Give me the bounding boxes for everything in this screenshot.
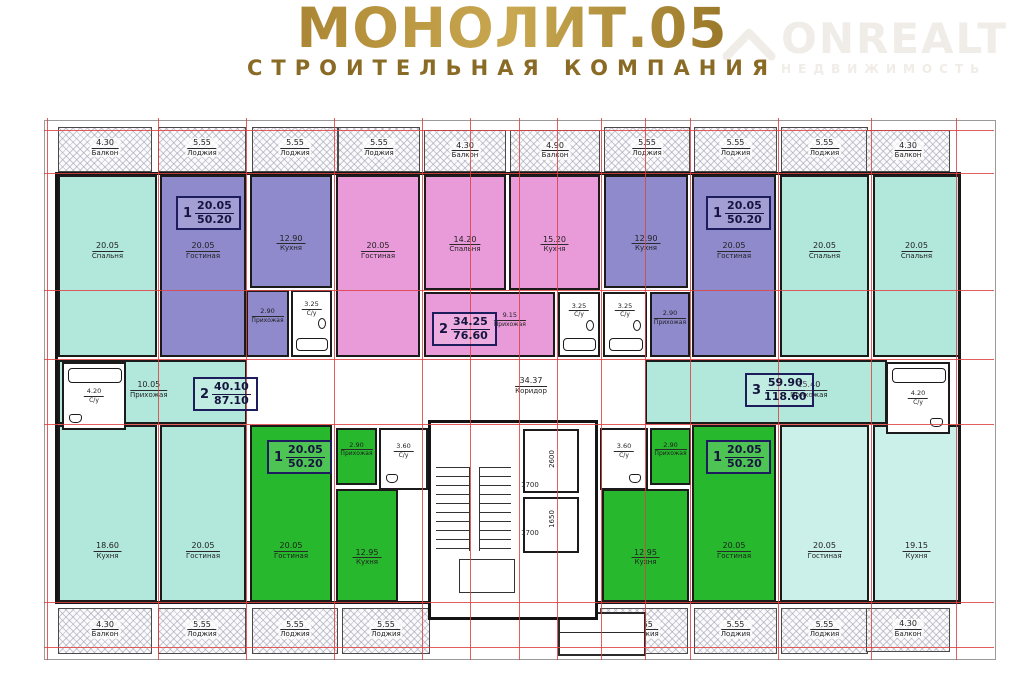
bathtub-icon [563, 338, 596, 351]
balcony-area: 5.55 [721, 620, 750, 631]
apartment-living-area: 20.05 [195, 200, 234, 214]
room-area: 20.05 [361, 241, 395, 252]
balcony-label: 5.55Лоджия [362, 138, 395, 157]
apartment-total-area: 50.20 [288, 458, 323, 471]
room: 2.90Прихожая [246, 290, 289, 357]
room-label: 4.20С/у [84, 388, 104, 404]
room-name: Прихожая [130, 391, 168, 399]
balcony-label: 4.30Балкон [893, 141, 924, 160]
room-name: С/у [908, 399, 928, 406]
room-name: Прихожая [654, 450, 686, 457]
balcony-area: 4.30 [92, 620, 119, 631]
balcony-name: Лоджия [364, 149, 393, 157]
balcony-name: Балкон [452, 151, 479, 159]
balcony-name: Лоджия [371, 630, 400, 638]
balcony-area: 5.55 [187, 620, 216, 631]
room-area: 14.20 [449, 235, 480, 246]
dimension-label: 1700 [521, 481, 539, 489]
axis-line [645, 118, 646, 660]
apartment-total-area: 50.20 [727, 214, 762, 227]
axis-line [871, 118, 872, 660]
balcony-area: 5.55 [810, 620, 839, 631]
room-area: 20.05 [717, 241, 751, 252]
room-name: Гостиная [186, 252, 220, 260]
room-area: 12.90 [277, 234, 306, 245]
axis-line [44, 424, 994, 425]
room: 12.90Кухня [604, 175, 688, 288]
room-name: С/у [614, 452, 634, 459]
room-label: 20.05Гостиная [717, 541, 751, 560]
apartment-areas: 20.0550.20 [286, 444, 325, 470]
axis-line [519, 118, 520, 660]
balcony-area: 4.30 [895, 141, 922, 152]
balcony-name: Лоджия [810, 149, 839, 157]
toilet-icon [629, 474, 641, 483]
axis-line [44, 647, 994, 648]
room-area: 18.60 [93, 541, 122, 552]
apartment-total-area: 50.20 [197, 214, 232, 227]
room-label: 3.25С/у [301, 301, 321, 317]
room-area: 2.90 [251, 308, 283, 317]
balcony-label: 5.55Лоджия [808, 138, 841, 157]
room-name: С/у [393, 452, 413, 459]
room-area: 20.05 [809, 241, 840, 252]
apartment-number: 1 [713, 450, 722, 465]
apartment-living-area: 40.10 [212, 381, 251, 395]
room-area: 15.20 [540, 235, 569, 246]
apartment-number: 1 [274, 450, 283, 465]
bathtub-icon [296, 338, 328, 351]
room-label: 20.05Гостиная [717, 241, 751, 260]
balcony-label: 4.30Балкон [450, 141, 481, 160]
room-label: 12.95Кухня [353, 548, 382, 567]
room-area: 20.05 [186, 241, 220, 252]
room-label: 20.05Гостиная [274, 541, 308, 560]
loggia: 5.55Лоджия [604, 127, 690, 172]
balcony-area: 4.30 [452, 141, 479, 152]
balcony: 4.30Балкон [866, 130, 950, 172]
room: 20.05Гостиная [336, 175, 420, 357]
toilet-icon [386, 474, 398, 483]
entrance-step-line [560, 632, 644, 633]
room-area: 2.90 [654, 442, 686, 451]
room-area: 2.90 [654, 310, 686, 319]
apartment-areas: 20.0550.20 [725, 200, 764, 226]
apartment-areas: 20.0550.20 [195, 200, 234, 226]
stair-landing [459, 559, 515, 593]
room-name: Прихожая [654, 319, 686, 326]
apartment-area-badge: 120.0550.20 [706, 196, 771, 230]
axis-line [601, 118, 602, 660]
room-name: Кухня [540, 245, 569, 253]
room-label: 20.05Спальня [901, 241, 932, 260]
balcony-label: 5.55Лоджия [278, 620, 311, 639]
balcony-label: 5.55Лоджия [185, 138, 218, 157]
room: 2.90Прихожая [650, 292, 690, 357]
apartment-number: 2 [200, 387, 209, 402]
axis-line [44, 130, 994, 131]
room-area: 4.20 [908, 390, 928, 399]
apartment-area-badge: 120.0550.20 [706, 440, 771, 474]
room: 15.20Кухня [509, 175, 600, 290]
room-name: Гостиная [274, 552, 308, 560]
room-name: С/у [615, 311, 635, 318]
room-name: Кухня [353, 558, 382, 566]
balcony-area: 4.90 [542, 141, 569, 152]
balcony-area: 5.55 [280, 620, 309, 631]
room: 2.90Прихожая [336, 428, 377, 485]
room-label: 3.60С/у [614, 443, 634, 459]
room-name: Спальня [449, 245, 480, 253]
balcony-label: 5.55Лоджия [369, 620, 402, 639]
apartment-area-badge: 120.0550.20 [267, 440, 332, 474]
apartment-number: 1 [183, 206, 192, 221]
room: 20.05Спальня [58, 175, 157, 357]
room: 18.60Кухня [58, 425, 157, 602]
balcony-area: 5.55 [810, 138, 839, 149]
room-label: 20.05Гостиная [186, 241, 220, 260]
floor-plan: 4.30Балкон 5.55Лоджия 5.55Лоджия 5.55Лод… [0, 0, 1024, 673]
room-label: 3.25С/у [569, 303, 589, 319]
dimension-label: 2600 [548, 450, 556, 468]
room-label: 20.05Спальня [809, 241, 840, 260]
staircase [436, 467, 511, 551]
balcony-label: 5.55Лоджия [630, 138, 663, 157]
balcony-area: 5.55 [187, 138, 216, 149]
bathroom: 3.25С/у [291, 290, 332, 357]
apartment-area-badge: 240.1087.10 [193, 377, 258, 411]
balcony-area: 5.55 [364, 138, 393, 149]
room-label: 20.05Гостиная [807, 541, 841, 560]
room-name: Спальня [92, 252, 123, 260]
room-area: 20.05 [92, 241, 123, 252]
axis-line [44, 173, 994, 174]
apartment-total-area: 87.10 [214, 395, 249, 408]
balcony-name: Лоджия [187, 630, 216, 638]
room-name: Прихожая [494, 321, 526, 328]
axis-line [47, 118, 48, 660]
balcony-label: 5.55Лоджия [719, 138, 752, 157]
room-name: Гостиная [807, 552, 841, 560]
axis-line [422, 118, 423, 660]
room-area: 2.90 [340, 442, 372, 451]
bathroom: 4.20С/у [62, 362, 126, 430]
toilet-icon [69, 414, 82, 423]
room-area: 20.05 [807, 541, 841, 552]
room-area: 10.05 [130, 380, 168, 391]
balcony-name: Лоджия [280, 630, 309, 638]
room-area: 20.05 [274, 541, 308, 552]
balcony-label: 5.55Лоджия [719, 620, 752, 639]
room-label: 15.20Кухня [540, 235, 569, 254]
apartment-living-area: 20.05 [725, 444, 764, 458]
room-label: 2.90Прихожая [654, 442, 686, 458]
balcony-name: Лоджия [721, 630, 750, 638]
room-label: 3.60С/у [393, 443, 413, 459]
room-label: 4.20С/у [908, 390, 928, 406]
apartment-areas: 40.1087.10 [212, 381, 251, 407]
loggia: 5.55Лоджия [781, 127, 868, 172]
sink-icon [633, 320, 641, 331]
room-area: 19.15 [902, 541, 931, 552]
loggia: 5.55Лоджия [158, 127, 246, 172]
room-area: 3.60 [393, 443, 413, 452]
balcony: 4.30Балкон [58, 127, 152, 172]
room: 20.05Гостиная [780, 425, 869, 602]
balcony-label: 4.90Балкон [540, 141, 571, 160]
room-area: 12.90 [632, 234, 661, 245]
room-name: Кухня [277, 244, 306, 252]
room-label: 20.05Гостиная [361, 241, 395, 260]
room-area: 4.20 [84, 388, 104, 397]
axis-line [334, 118, 335, 660]
loggia: 5.55Лоджия [252, 127, 338, 172]
sink-icon [586, 320, 594, 331]
balcony: 4.30Балкон [866, 608, 950, 652]
axis-line [690, 118, 691, 660]
room-name: Кухня [93, 552, 122, 560]
room-name: Спальня [901, 252, 932, 260]
balcony-label: 5.55Лоджия [278, 138, 311, 157]
room-name: Прихожая [340, 450, 372, 457]
room-label: 12.90Кухня [632, 234, 661, 253]
apartment-number: 1 [713, 206, 722, 221]
room: 20.05Гостиная [160, 425, 246, 602]
bathroom: 3.60С/у [600, 428, 648, 490]
apartment-area-badge: 359.90118.60 [745, 373, 814, 407]
room: 19.15Кухня [873, 425, 960, 602]
apartment-area-badge: 120.0550.20 [176, 196, 241, 230]
balcony-area: 5.55 [280, 138, 309, 149]
bathroom: 3.60С/у [379, 428, 428, 490]
balcony: 4.30Балкон [424, 130, 506, 172]
room-name: Прихожая [251, 317, 283, 324]
room-name: Гостиная [717, 552, 751, 560]
balcony-area: 5.55 [371, 620, 400, 631]
balcony-label: 5.55Лоджия [808, 620, 841, 639]
balcony-name: Балкон [895, 630, 922, 638]
room: 20.05Спальня [873, 175, 960, 357]
balcony-label: 4.30Балкон [893, 619, 924, 638]
room-name: С/у [569, 311, 589, 318]
room-label: 3.25С/у [615, 303, 635, 319]
balcony-area: 5.55 [721, 138, 750, 149]
apartment-number: 3 [752, 383, 761, 398]
apartment-areas: 20.0550.20 [725, 444, 764, 470]
balcony-name: Балкон [92, 149, 119, 157]
room-label: 20.05Гостиная [186, 541, 220, 560]
room-area: 3.25 [569, 303, 589, 312]
room-area: 12.95 [353, 548, 382, 559]
balcony-area: 4.30 [895, 619, 922, 630]
apartment-total-area: 50.20 [727, 458, 762, 471]
bathtub-icon [609, 338, 643, 351]
room-label: 12.90Кухня [277, 234, 306, 253]
room-label: 20.05Спальня [92, 241, 123, 260]
room-label: 18.60Кухня [93, 541, 122, 560]
axis-line [44, 602, 994, 603]
room-name: С/у [84, 397, 104, 404]
apartment-living-area: 34.25 [451, 316, 490, 330]
room-name: Гостиная [717, 252, 751, 260]
room-area: 20.05 [717, 541, 751, 552]
apartment-areas: 34.2576.60 [451, 316, 490, 342]
apartment-total-area: 118.60 [764, 391, 806, 404]
balcony: 4.90Балкон [510, 130, 600, 172]
room-area: 3.60 [614, 443, 634, 452]
bathroom: 3.25С/у [603, 292, 647, 357]
room-label: 2.90Прихожая [251, 308, 283, 324]
balcony-label: 4.30Балкон [90, 138, 121, 157]
balcony-area: 4.30 [92, 138, 119, 149]
axis-line [470, 118, 471, 660]
bathtub-icon [68, 368, 122, 383]
apartment-total-area: 76.60 [453, 330, 488, 343]
dimension-label: 1700 [521, 529, 539, 537]
bathtub-icon [892, 368, 946, 383]
axis-line [44, 359, 994, 360]
room-area: 20.05 [186, 541, 220, 552]
stair-core: 2600 1700 1650 1700 [428, 420, 598, 620]
balcony-name: Лоджия [632, 149, 661, 157]
room-label: 2.90Прихожая [654, 310, 686, 326]
balcony-label: 5.55Лоджия [185, 620, 218, 639]
sink-icon [318, 318, 326, 329]
room-label: 2.90Прихожая [340, 442, 372, 458]
axis-line [158, 118, 159, 660]
balcony-label: 4.30Балкон [90, 620, 121, 639]
toilet-icon [930, 418, 943, 427]
balcony-name: Лоджия [721, 149, 750, 157]
balcony-area: 5.55 [632, 138, 661, 149]
apartment-living-area: 20.05 [725, 200, 764, 214]
room-name: Кухня [902, 552, 931, 560]
axis-line [956, 118, 957, 660]
axis-line [557, 118, 558, 660]
room-name: Спальня [809, 252, 840, 260]
balcony-name: Балкон [895, 151, 922, 159]
room-name: Гостиная [361, 252, 395, 260]
room-area: 3.25 [615, 303, 635, 312]
room-label: 14.20Спальня [449, 235, 480, 254]
room: 2.90Прихожая [650, 428, 691, 485]
room-name: С/у [301, 310, 321, 317]
loggia: 5.55Лоджия [338, 127, 420, 172]
balcony-name: Балкон [542, 151, 569, 159]
loggia: 5.55Лоджия [694, 127, 777, 172]
axis-line [44, 290, 994, 291]
room-name: Кухня [632, 244, 661, 252]
apartment-number: 2 [439, 322, 448, 337]
room-area: 9.15 [494, 312, 526, 321]
apartment-area-badge: 234.2576.60 [432, 312, 497, 346]
room: 12.90Кухня [250, 175, 332, 288]
room-name: Гостиная [186, 552, 220, 560]
balcony-name: Лоджия [280, 149, 309, 157]
balcony-name: Лоджия [810, 630, 839, 638]
bathroom: 3.25С/у [558, 292, 600, 357]
room-label: 9.15Прихожая [494, 312, 526, 328]
room-label: 10.05Прихожая [130, 380, 168, 399]
room: 20.05Спальня [780, 175, 869, 357]
apartment-areas: 59.90118.60 [764, 377, 806, 403]
apartment-living-area: 59.90 [766, 377, 805, 391]
room-label: 19.15Кухня [902, 541, 931, 560]
room-area: 20.05 [901, 241, 932, 252]
room-area: 3.25 [301, 301, 321, 310]
dimension-label: 1650 [548, 510, 556, 528]
room: 14.20Спальня [424, 175, 506, 290]
apartment-living-area: 20.05 [286, 444, 325, 458]
balcony-name: Лоджия [187, 149, 216, 157]
room: 12.95Кухня [336, 489, 398, 602]
balcony-name: Балкон [92, 630, 119, 638]
